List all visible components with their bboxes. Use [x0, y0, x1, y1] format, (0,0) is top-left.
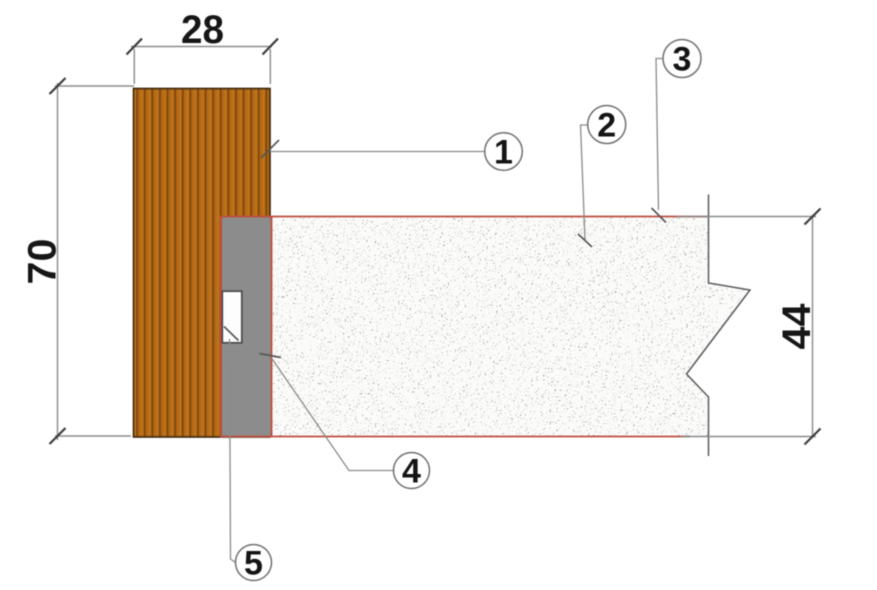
svg-text:4: 4	[402, 453, 421, 491]
svg-text:1: 1	[494, 134, 513, 172]
svg-text:2: 2	[597, 107, 616, 145]
svg-text:44: 44	[775, 303, 819, 350]
svg-text:70: 70	[21, 239, 65, 285]
svg-text:5: 5	[244, 545, 263, 583]
svg-text:28: 28	[181, 8, 224, 52]
svg-text:3: 3	[673, 41, 692, 79]
